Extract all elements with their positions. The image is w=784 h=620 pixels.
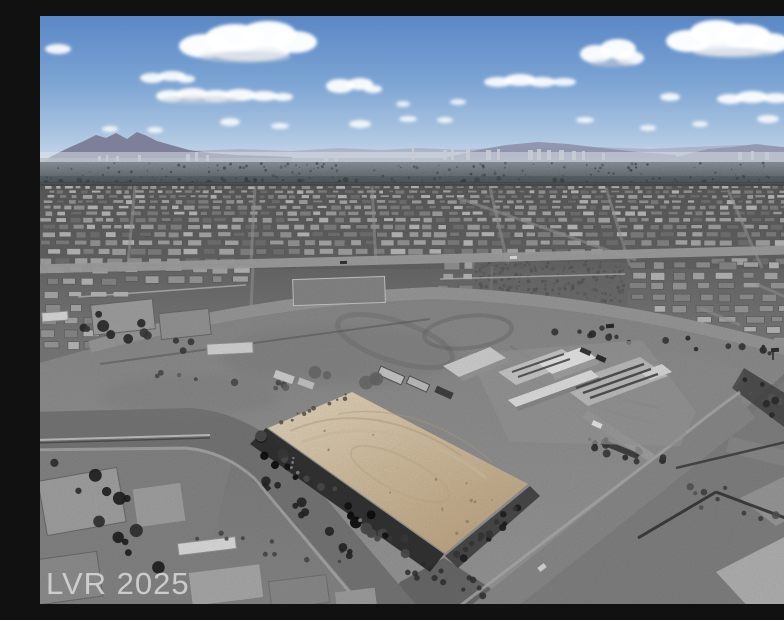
grain-valley — [40, 162, 784, 186]
grain-ground — [40, 184, 784, 604]
watermark: LVR 2025 — [46, 566, 190, 601]
aerial-photo: LVR 2025 — [40, 16, 784, 604]
aerial-photo-canvas: LVR 2025 — [40, 16, 784, 604]
